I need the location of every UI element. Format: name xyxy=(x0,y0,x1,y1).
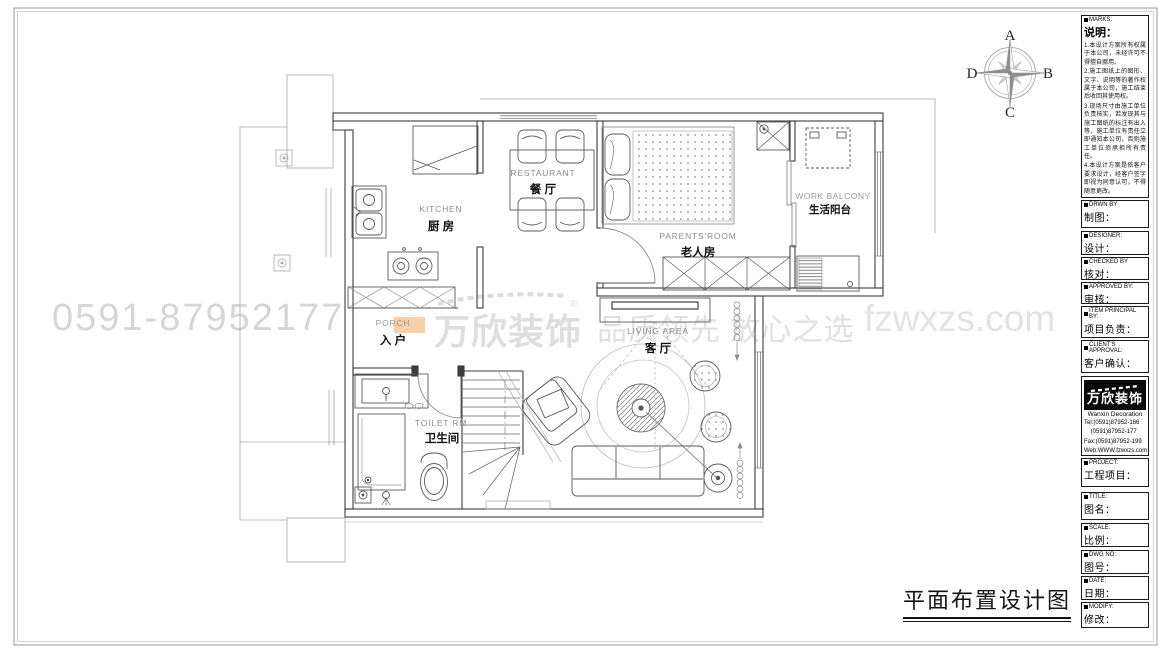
porch-label-en: PORCH xyxy=(376,318,411,328)
living-area-label-en: LIVING AREA xyxy=(627,326,689,336)
titleblock-field-client-approval: CLIENT'S APPROVAL: 客户确认： xyxy=(1081,340,1149,373)
titleblock-field-project: PROJECT: 工程项目： xyxy=(1081,458,1149,487)
note-item: 1.本设计方案所有权属于本公司，未经许可不得擅自挪用。 xyxy=(1084,42,1146,67)
shower-head-icon xyxy=(382,492,390,507)
titleblock-field-scale: SCALE: 比例： xyxy=(1081,523,1149,547)
living-area-label-zh: 客 厅 xyxy=(644,341,672,355)
parents-room-label-en: PARENTS'ROOM xyxy=(659,231,736,241)
black-square-icon xyxy=(1084,260,1088,264)
titleblock-field-drawn-by: DRWN BY 制图： xyxy=(1081,200,1149,228)
parents-room-label-zh: 老人房 xyxy=(680,245,716,259)
site-outline xyxy=(240,75,935,562)
stove xyxy=(388,252,438,280)
staircase xyxy=(463,370,561,509)
kitchen-label-zh: 厨 房 xyxy=(428,219,454,233)
titleblock-field-date: DATE: 日期： xyxy=(1081,576,1149,600)
compass-east-label: B xyxy=(1043,66,1053,82)
black-square-icon xyxy=(1084,285,1088,289)
drawing-title: 平面布置设计图 xyxy=(903,583,1071,622)
marks-notes: 1.本设计方案所有权属于本公司，未经许可不得擅自挪用。 2.施工图纸上的图形、文… xyxy=(1084,42,1146,196)
black-square-icon xyxy=(1084,553,1088,557)
floor-lamp xyxy=(704,464,732,492)
titleblock-field-approved-by: APPROVED BY: 审核： xyxy=(1081,282,1149,304)
curtain-coil xyxy=(737,443,743,499)
pillow xyxy=(605,134,630,175)
curtain-coil xyxy=(734,302,740,360)
company-tel-1: Tel:(0591)87952-166 xyxy=(1084,419,1146,428)
parents-room-door xyxy=(600,228,655,283)
company-tel-2: (0591)87952-177 xyxy=(1084,428,1146,437)
dining-chair xyxy=(518,198,546,231)
company-fax: Fax:(0591)87952-199 xyxy=(1084,438,1146,447)
titleblock-field-dwg-no: DWG NO: 图号： xyxy=(1081,550,1149,574)
note-item: 3.现场尺寸由施工单位负责核实，若发现其与施工图纸的标注有出入等，施工单位有责任… xyxy=(1084,103,1146,162)
toilet xyxy=(421,453,448,501)
work-balcony-label-zh: 生活阳台 xyxy=(809,203,851,216)
dining-chair xyxy=(556,198,584,231)
compass-north-label: A xyxy=(1005,28,1016,44)
title-underline xyxy=(903,617,1071,619)
titleblock-field-checked-by: CHECKED BY 核对： xyxy=(1081,257,1149,280)
titleblock-company: 万欣装饰 Wanxin Decoration Tel:(0591)87952-1… xyxy=(1081,376,1149,456)
company-logo: 万欣装饰 xyxy=(1084,380,1146,410)
work-balcony-label-en: WORK BALCONY xyxy=(795,191,870,201)
titleblock-field-designer: DESIGNER: 设计： xyxy=(1081,231,1149,255)
black-square-icon xyxy=(1084,526,1088,530)
black-square-icon xyxy=(1084,495,1088,499)
compass-south-label: C xyxy=(1005,105,1015,121)
dining-chair xyxy=(556,130,584,163)
marks-heading: 说明： xyxy=(1084,24,1146,40)
note-item: 2.施工图纸上的图形、文字、说明等的著作权属于本公司，施工结束后收回其使用权。 xyxy=(1084,68,1146,102)
sofa xyxy=(572,446,704,496)
washing-machine xyxy=(806,128,850,168)
restaurant-label-en: RESTAURANT xyxy=(511,168,576,178)
drawing-sheet: 0591-87952177 万欣装饰 ® 品质领先 放心之选 fzwxzs.co… xyxy=(0,0,1170,653)
pillow xyxy=(605,179,630,220)
company-contacts: Tel:(0591)87952-166 (0591)87952-177 Fax:… xyxy=(1084,419,1146,456)
sheet-frame xyxy=(14,8,1157,645)
note-item: 4.本设计方案是依客户要求设计，经客户签字即视为同意认可，不得随意更改。 xyxy=(1084,162,1146,196)
toilet-label-en: TOILET RM xyxy=(415,418,467,428)
black-square-icon xyxy=(1084,312,1088,316)
black-square-icon xyxy=(1084,203,1088,207)
porch-label-zh: 入 户 xyxy=(380,333,406,347)
kitchen-sink-counter xyxy=(352,186,386,238)
ottoman xyxy=(690,361,720,391)
kitchen-label-en: KITCHEN xyxy=(420,204,463,214)
coffee-table xyxy=(617,384,665,432)
black-square-icon xyxy=(1084,605,1088,609)
title-underline xyxy=(903,621,1071,622)
black-square-icon xyxy=(1084,579,1088,583)
compass-rose-icon: A B C D xyxy=(967,28,1053,121)
company-name-en: Wanxin Decoration xyxy=(1084,411,1146,418)
dining-chair xyxy=(518,130,546,163)
titleblock-field-title: TITLE: 图名： xyxy=(1081,492,1149,520)
titleblock-field-modify: MODIFY: 修改： xyxy=(1081,602,1149,628)
titleblock-marks: MARKS: 说明： 1.本设计方案所有权属于本公司，未经许可不得擅自挪用。 2… xyxy=(1081,15,1149,198)
drawing-title-text: 平面布置设计图 xyxy=(903,583,1071,615)
parents-room-fixtures xyxy=(600,127,790,290)
floor-plan: KITCHEN 厨 房 RESTAURANT 餐 厅 PARENTS'ROOM … xyxy=(0,0,1170,653)
toilet-label-zh: 卫生间 xyxy=(425,431,460,445)
black-square-icon xyxy=(1084,234,1088,238)
restaurant-label-zh: 餐 厅 xyxy=(529,182,557,196)
company-web: Web:WWW.fzwxzs.com xyxy=(1084,447,1146,456)
compass-west-label: D xyxy=(967,66,978,82)
kitchen-fixtures xyxy=(348,126,478,308)
toilet-door xyxy=(418,375,461,418)
titleblock-field-item-principal: ITEM PRINCIPAL BY: 项目负责： xyxy=(1081,306,1149,338)
black-square-icon xyxy=(1084,461,1088,465)
black-square-icon xyxy=(1084,346,1088,350)
dining-table xyxy=(510,150,594,210)
ottoman xyxy=(701,412,731,442)
black-square-icon xyxy=(1084,18,1088,22)
dining-set xyxy=(510,130,594,231)
tv xyxy=(612,302,698,309)
